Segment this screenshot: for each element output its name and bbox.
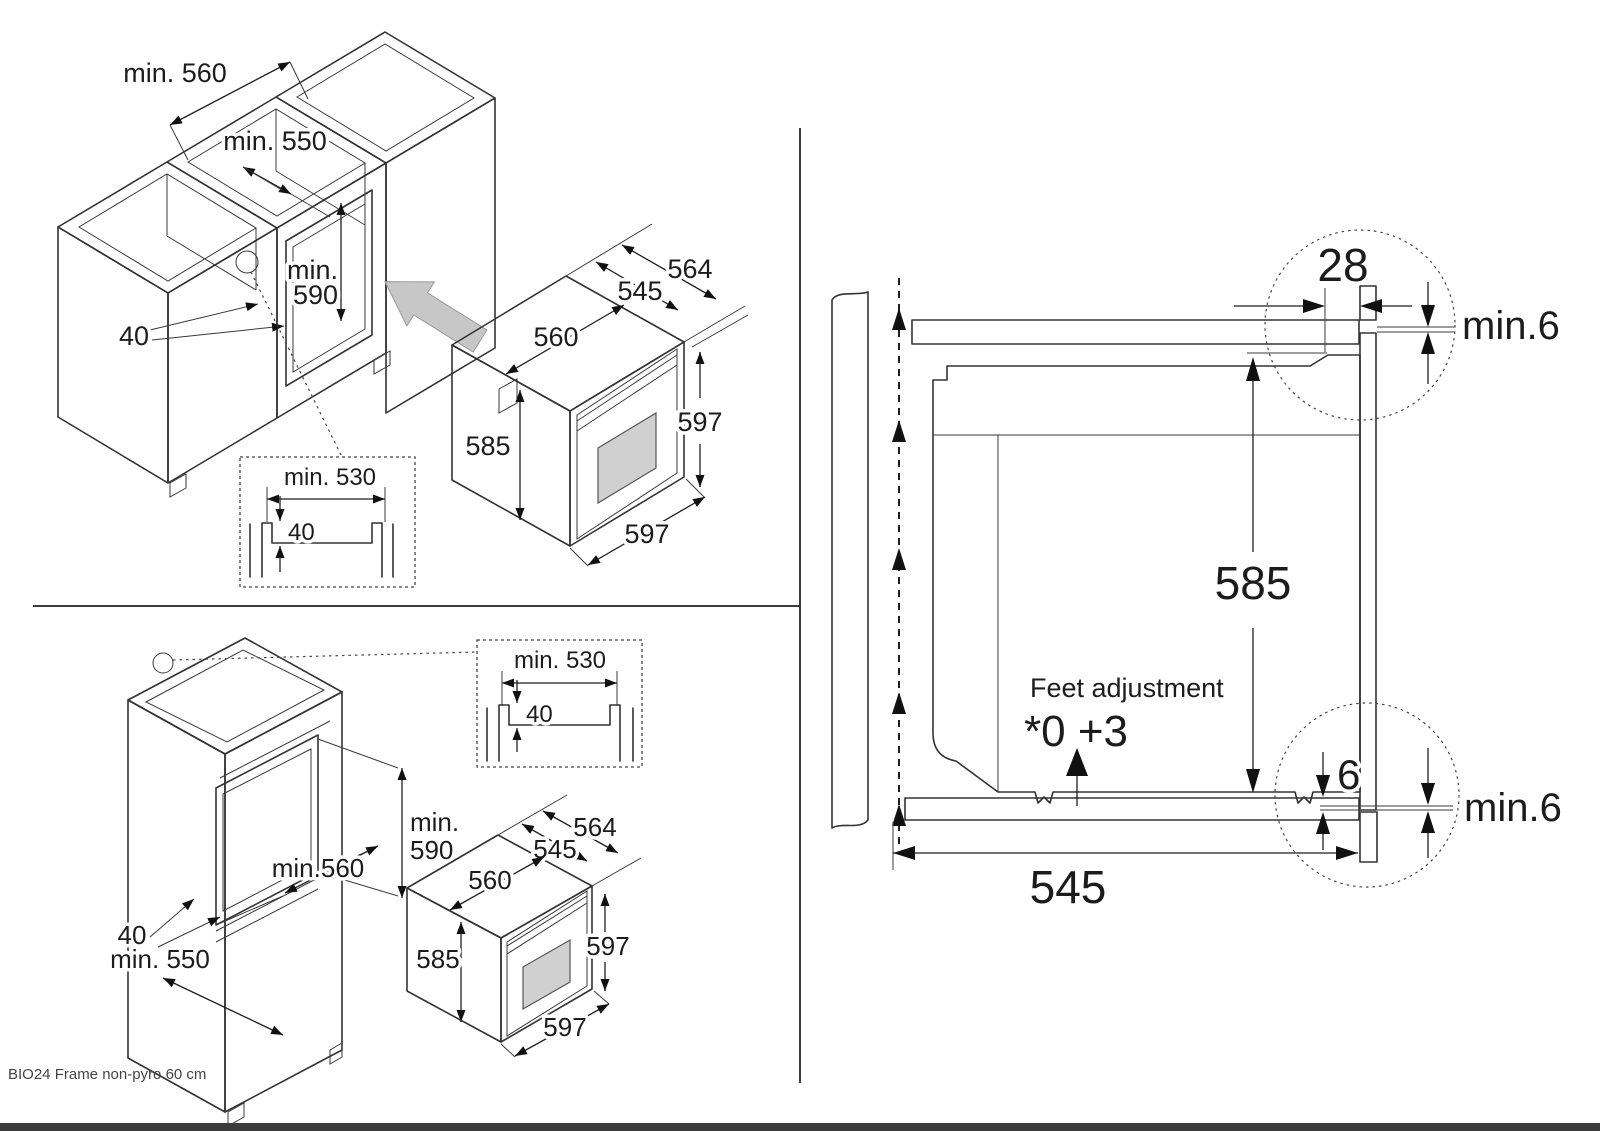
oven-door-window <box>598 413 656 503</box>
bottom-detail-circle <box>1275 703 1459 887</box>
dim-min-550: min. 550 <box>223 126 327 156</box>
inset-min-530: min. 530 <box>284 464 376 491</box>
dim-6-label: 6 <box>1337 751 1360 798</box>
shelf-section <box>905 798 1359 820</box>
dim-585: 585 <box>416 944 459 974</box>
oven-door-window <box>523 940 570 1009</box>
dim-gap-top-min6: min.6 <box>1421 282 1560 384</box>
dim-585-label: 585 <box>1215 557 1292 609</box>
dim-height-585: 585 <box>1215 357 1292 793</box>
dim-min-590-line1: min. <box>410 807 459 837</box>
ventilation-airflow-indicator <box>892 278 906 848</box>
oven-handle <box>507 896 587 954</box>
dim-min-590-line2: 590 <box>410 835 453 865</box>
dim-min-550: min. 550 <box>110 944 210 974</box>
dim-min6-bottom-label: min.6 <box>1464 786 1562 830</box>
dim-depth-545: 545 <box>893 822 1358 913</box>
dim-gap-bottom-min6: min.6 <box>1421 748 1562 858</box>
dim-560: 560 <box>468 865 511 895</box>
inset-notch-40: 40 <box>288 519 315 546</box>
dim-28-label: 28 <box>1317 239 1368 291</box>
frame-notch-detail-inset: min. 530 40 <box>477 640 642 767</box>
model-footnote: BIO24 Frame non-pyro 60 cm <box>8 1066 206 1083</box>
inset-notch-40: 40 <box>526 701 553 728</box>
page-bottom-bar <box>0 1123 1600 1131</box>
dim-frame-below-6: 6 <box>1316 751 1360 850</box>
oven-handle <box>577 355 677 431</box>
dim-560: 560 <box>533 322 578 352</box>
inset-min-530: min. 530 <box>514 647 606 674</box>
wall-section <box>832 292 868 828</box>
panel-base-cabinet-installation: min. 560 min. 550 min. 590 40 min. 530 4… <box>0 0 800 606</box>
detail-marker-circle <box>153 653 173 673</box>
dim-597-width: 597 <box>624 519 669 549</box>
dim-min-560: min.560 <box>272 853 365 883</box>
worktop-section <box>912 320 1359 344</box>
dim-545-label: 545 <box>1030 861 1107 913</box>
dim-rail-40: 40 <box>119 321 149 351</box>
dim-597-height: 597 <box>677 407 722 437</box>
dim-545: 545 <box>617 276 662 306</box>
feet-adjustment-label: Feet adjustment <box>1030 673 1224 703</box>
cabinet-dimensions: min. 590 min.560 40 min. 550 <box>110 652 477 1035</box>
detail-marker-circle <box>236 251 258 273</box>
dim-frame-overlap-28: 28 <box>1234 239 1412 352</box>
feet-adjustment-annotation: Feet adjustment *0 +3 <box>1024 673 1224 806</box>
dim-585: 585 <box>465 431 510 461</box>
oven-isometric-drawing <box>452 276 684 546</box>
panel-divider-horizontal <box>33 605 800 607</box>
installation-diagram-page: min. 560 min. 550 min. 590 40 min. 530 4… <box>0 0 1600 1131</box>
insertion-direction-arrow <box>371 260 494 363</box>
dim-564: 564 <box>573 812 616 842</box>
panel-tall-cabinet-installation: min. 590 min.560 40 min. 550 min. 530 40 <box>0 606 800 1131</box>
frame-notch-detail-inset: min. 530 40 <box>240 457 415 587</box>
dim-min6-top-label: min.6 <box>1462 304 1560 348</box>
panel-cross-section: 28 min.6 585 Feet adjustment *0 +3 <box>800 0 1600 1131</box>
dim-597-width: 597 <box>543 1012 586 1042</box>
dim-min-590-line2: 590 <box>293 280 338 310</box>
dim-564: 564 <box>667 254 712 284</box>
dim-597-height: 597 <box>586 931 629 961</box>
oven-body-section <box>933 353 1360 803</box>
dim-min-560: min. 560 <box>123 58 227 88</box>
feet-adjustment-values: *0 +3 <box>1024 707 1128 756</box>
